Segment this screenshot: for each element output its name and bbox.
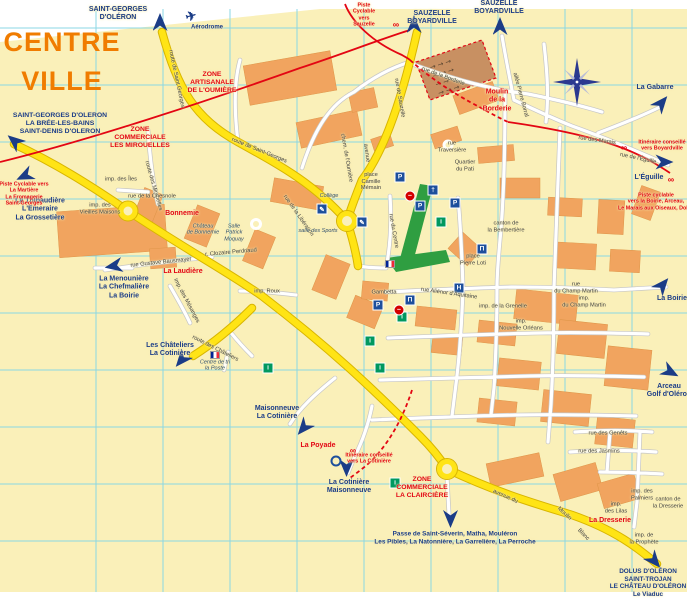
info-icon: i xyxy=(365,336,376,347)
street-label: placePierre Loti xyxy=(460,253,486,266)
noentry-icon: – xyxy=(405,191,416,202)
street-label: canton dela Bembertière xyxy=(488,220,525,233)
venue-label: Collège xyxy=(320,193,339,199)
plane-icon: ✈ xyxy=(185,10,196,21)
destination-label: Aérodrome xyxy=(191,24,223,31)
venue-label: salle des Sports xyxy=(298,228,337,234)
map-margin xyxy=(0,592,687,600)
locality-label: Moulinde laBorderie xyxy=(483,89,512,114)
destination-label: La Boirie xyxy=(657,295,687,303)
street-label: imp. desVieilles Maisons xyxy=(80,202,121,215)
city-map[interactable]: → → → → → → → → → → → → xyxy=(0,0,687,600)
cycle-route-note: Itinéraire conseillévers Boyardville xyxy=(638,140,685,153)
street-label: imp.Nouvelle Orléans xyxy=(499,318,543,331)
destination-label: DOLUS D'OLÉRONSAINT-TROJANLE CHÂTEAU D'O… xyxy=(610,568,686,598)
destination-label: Passe de Saint-Séverin, Matha, MouléronL… xyxy=(374,530,535,545)
street-label: imp. des Îles xyxy=(105,177,137,184)
zone-label: ZONECOMMERCIALELES MIROUELLES xyxy=(110,126,170,150)
destination-label: Les ChâteliersLa Cotinière xyxy=(146,342,194,359)
locality-label: Bonnemie xyxy=(165,210,199,218)
venue-label: SallePatrickMoquay xyxy=(224,223,244,242)
parking-icon: P xyxy=(373,300,384,311)
school-icon: ✎ xyxy=(317,204,328,215)
street-label: imp.des Lilas xyxy=(605,501,627,514)
destination-label: MaisonneuveLa Cotinière xyxy=(255,405,299,422)
locality-label: La Dresserie xyxy=(589,517,631,525)
bike-icon: ∞ xyxy=(392,20,401,29)
cycle-route-note: Piste Cyclable versLa MartièreLa Fromage… xyxy=(0,181,49,207)
church-icon: † xyxy=(428,185,439,196)
destination-label: ArceauGolf d'Oléron xyxy=(647,383,687,400)
bike-icon: ∞ xyxy=(667,175,676,184)
street-label: rue des Genêts xyxy=(589,431,628,438)
destination-label: L'Éguille xyxy=(635,174,664,182)
ring-icon xyxy=(331,456,342,467)
street-label: imp.du Champ Martin xyxy=(562,295,606,308)
street-label: imp. desPalmiers xyxy=(631,488,653,501)
info-icon: i xyxy=(436,217,447,228)
destination-label: SAINT-GEORGESD'OLÉRON xyxy=(89,6,147,23)
street-label: Gambetta xyxy=(372,290,397,297)
parking-icon: P xyxy=(395,172,406,183)
parking-icon: P xyxy=(415,201,426,212)
school-icon: ✎ xyxy=(357,217,368,228)
venue-label: Centre de trila Poste xyxy=(200,360,230,373)
street-label: ruedu Champ Martin xyxy=(554,281,598,294)
street-label: rueTraversière xyxy=(438,140,467,153)
info-icon: i xyxy=(375,363,386,374)
destination-label: La Gabarre xyxy=(637,84,674,92)
street-label: placeCamilleMémain xyxy=(361,172,381,192)
cycle-route-note: Piste cyclablevers la Boirie, Arceau,Le … xyxy=(618,192,687,211)
venue-label: Châteaude Bonnemie xyxy=(187,224,219,237)
destination-label: La CotinièreMaisonneuve xyxy=(327,479,371,496)
flag-icon xyxy=(385,260,395,268)
cycle-route-note: Itinéraire conseillévers La Cotinière xyxy=(345,453,392,466)
info-icon: i xyxy=(263,363,274,374)
destination-label: SAUZELLEBOYARDVILLE xyxy=(407,10,457,27)
street-label: imp. de la Grenelle xyxy=(479,304,527,311)
parking-icon: P xyxy=(450,198,461,209)
zone-label: ZONECOMMERCIALELA CLAIRCIÈRE xyxy=(396,476,448,500)
bike-icon: ∞ xyxy=(620,143,629,152)
museum-icon: Π xyxy=(405,295,416,306)
destination-label: SAUZELLEBOYARDVILLE xyxy=(474,0,524,16)
destination-label: SAINT-GEORGES D'OLERONLA BRÉE-LES-BAINSS… xyxy=(13,112,107,136)
street-label: imp. dela Prophète xyxy=(629,532,658,545)
page-title: CENTRE VILLE xyxy=(3,23,120,101)
destination-label: La MenounièreLa ChefmalièreLa Boirie xyxy=(99,276,149,301)
street-label: rue des Jasmins xyxy=(578,449,619,456)
locality-label: La Poyade xyxy=(300,442,335,450)
noentry-icon: – xyxy=(394,305,405,316)
street-label: imp. Roux xyxy=(254,289,280,296)
locality-label: La Laudière xyxy=(163,268,202,276)
cycle-route-note: PisteCyclableversSauzelle xyxy=(353,2,375,28)
zone-label: ZONEARTISANALEDE L'OUMIÈRE xyxy=(188,71,237,95)
street-label: canton dela Dresserie xyxy=(653,496,683,509)
street-label: Quartierdu Pati xyxy=(455,159,476,172)
street-label: rue de la Chesnole xyxy=(128,194,176,201)
